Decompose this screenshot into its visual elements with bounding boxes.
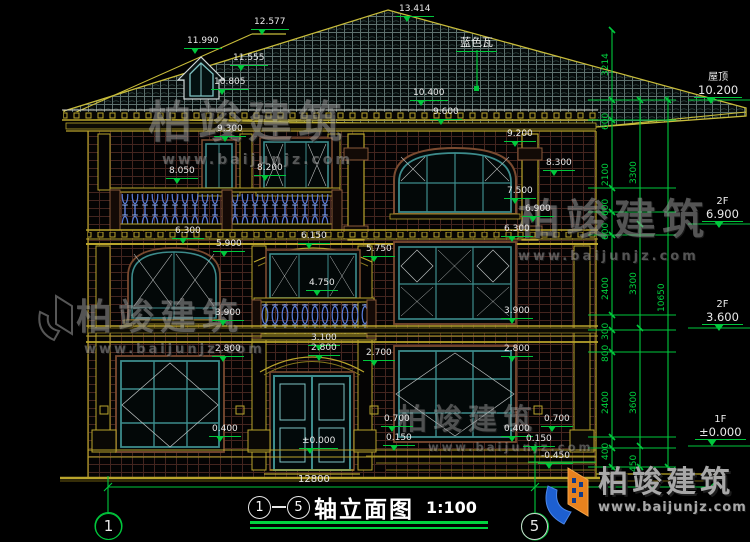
brand-logo-icon: [540, 466, 592, 528]
cad-elevation-drawing: 蓝色瓦 柏竣建筑 www.baijunjz.com 柏竣建筑 www.baiju…: [0, 0, 750, 542]
elevation-level-label: 9.200: [504, 129, 536, 142]
elevation-level-label: 10.805: [211, 77, 249, 90]
elevation-level-label: 0.150: [383, 433, 415, 446]
watermark-logo-icon: [36, 294, 74, 344]
watermark-name: 柏竣建筑: [148, 97, 348, 148]
floor-elevation: 10.200: [698, 84, 738, 96]
elevation-level-label: 10.400: [410, 88, 448, 101]
elevation-level-label: 3.900: [212, 308, 244, 321]
elevation-level-label: 12.577: [251, 17, 289, 30]
elevation-level-label: 8.200: [254, 163, 286, 176]
dimension-chain-value: 300: [601, 323, 611, 340]
floor-elevation: 6.900: [706, 208, 739, 220]
elevation-level-label: 2.700: [363, 348, 395, 361]
elevation-level-label: 11.990: [184, 36, 222, 49]
roof-material-note: 蓝色瓦: [456, 34, 497, 52]
floor-name: 2F: [716, 299, 728, 310]
dimension-chain-value: 600: [601, 113, 611, 130]
title-axis-from: 1: [248, 496, 271, 519]
axis-bubble-1: 1: [95, 513, 122, 540]
elevation-level-label: 2.800: [501, 344, 533, 357]
watermark-right: 柏竣建筑 www.baijunjz.com: [518, 186, 710, 264]
elevation-level-label: 5.750: [363, 244, 395, 257]
title-axis-to: 5: [287, 496, 310, 519]
floor-level-marker: 1F±0.000: [695, 414, 746, 440]
dimension-chain-value: 600: [601, 223, 611, 240]
elevation-level-label: 6.300: [172, 226, 204, 239]
elevation-level-label: 5.900: [213, 239, 245, 252]
elevation-level-label: ±0.000: [299, 436, 338, 449]
floor-name: 1F: [714, 414, 726, 425]
dimension-chain-value: 3600: [629, 391, 639, 414]
dimension-chain-value: 600: [601, 199, 611, 216]
title-underline-thin: [250, 527, 488, 529]
elevation-level-label: 7.500: [504, 186, 536, 199]
elevation-level-label: 8.300: [543, 158, 575, 171]
watermark-name: 柏竣建筑: [518, 195, 710, 244]
elevation-level-label: -0.450: [538, 451, 573, 464]
elevation-level-label: 0.700: [381, 414, 413, 427]
elevation-level-label: 4.750: [306, 278, 338, 291]
brand-logo: 柏竣建筑 www.baijunjz.com: [540, 466, 747, 528]
elevation-level-label: 3.900: [501, 306, 533, 319]
elevation-level-label: 9.600: [430, 107, 462, 120]
dimension-chain-value: 400: [601, 443, 611, 460]
elevation-level-label: 11.555: [230, 53, 268, 66]
dimension-chain-value: 3214: [601, 53, 611, 76]
drawing-title: 1 5 轴立面图 1:100: [248, 490, 477, 524]
elevation-level-label: 0.150: [523, 434, 555, 447]
dimension-chain-value: 10650: [657, 283, 667, 312]
dimension-chain-value: 3300: [629, 161, 639, 184]
elevation-level-label: 0.700: [541, 414, 573, 427]
watermark-top: 柏竣建筑 www.baijunjz.com: [148, 86, 353, 168]
floor-elevation: ±0.000: [699, 426, 742, 438]
elevation-level-label: 6.900: [522, 204, 554, 217]
elevation-level-label: 6.300: [501, 224, 533, 237]
dimension-chain-value: 2400: [601, 277, 611, 300]
overall-width-dimension: 12800: [298, 474, 330, 485]
brand-url: www.baijunjz.com: [598, 500, 747, 515]
floor-level-marker: 屋顶10.200: [694, 72, 742, 98]
title-scale: 1:100: [426, 498, 477, 517]
elevation-level-label: 6.150: [298, 231, 330, 244]
axis-number: 1: [95, 513, 122, 540]
elevation-level-label: 2.800: [212, 344, 244, 357]
floor-name: 屋顶: [708, 72, 728, 83]
elevation-level-label: 13.414: [396, 4, 434, 17]
floor-name: 2F: [716, 196, 728, 207]
watermark-url: www.baijunjz.com: [518, 249, 710, 264]
floor-level-marker: 2F6.900: [702, 196, 743, 222]
floor-level-marker: 2F3.600: [702, 299, 743, 325]
elevation-level-label: 0.400: [209, 424, 241, 437]
dimension-chain-value: 3300: [629, 272, 639, 295]
dimension-chain-value: 2100: [601, 163, 611, 186]
title-name: 轴立面图: [314, 490, 414, 524]
dimension-chain-value: 800: [601, 345, 611, 362]
elevation-level-label: 2.800: [308, 343, 340, 356]
elevation-level-label: 8.050: [166, 166, 198, 179]
title-underline: [250, 521, 488, 524]
dimension-chain-value: 2400: [601, 391, 611, 414]
brand-name: 柏竣建筑: [598, 466, 747, 500]
title-dash: [272, 506, 286, 508]
floor-elevation: 3.600: [706, 311, 739, 323]
elevation-level-label: 9.300: [214, 124, 246, 137]
